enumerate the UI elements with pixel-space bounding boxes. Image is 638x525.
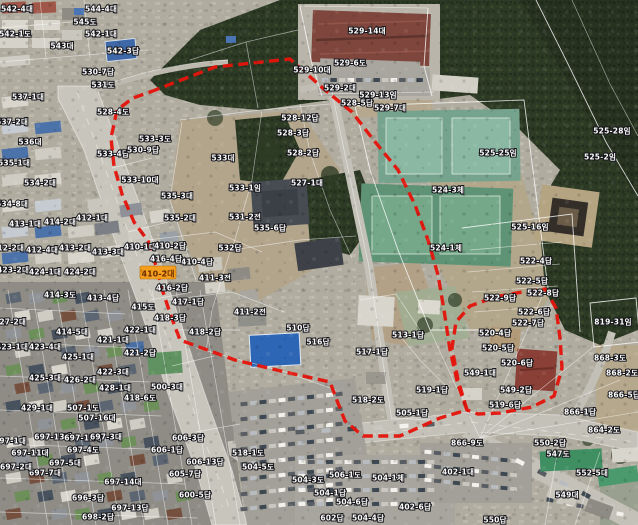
satellite-map-canvas[interactable]: 542-4대544-4대545도542-1도542-1대543대542-3답53…: [0, 0, 638, 525]
aerial-map-view[interactable]: 542-4대544-4대545도542-1도542-1대543대542-3답53…: [0, 0, 638, 525]
imagery-noise-overlay: [0, 0, 638, 525]
